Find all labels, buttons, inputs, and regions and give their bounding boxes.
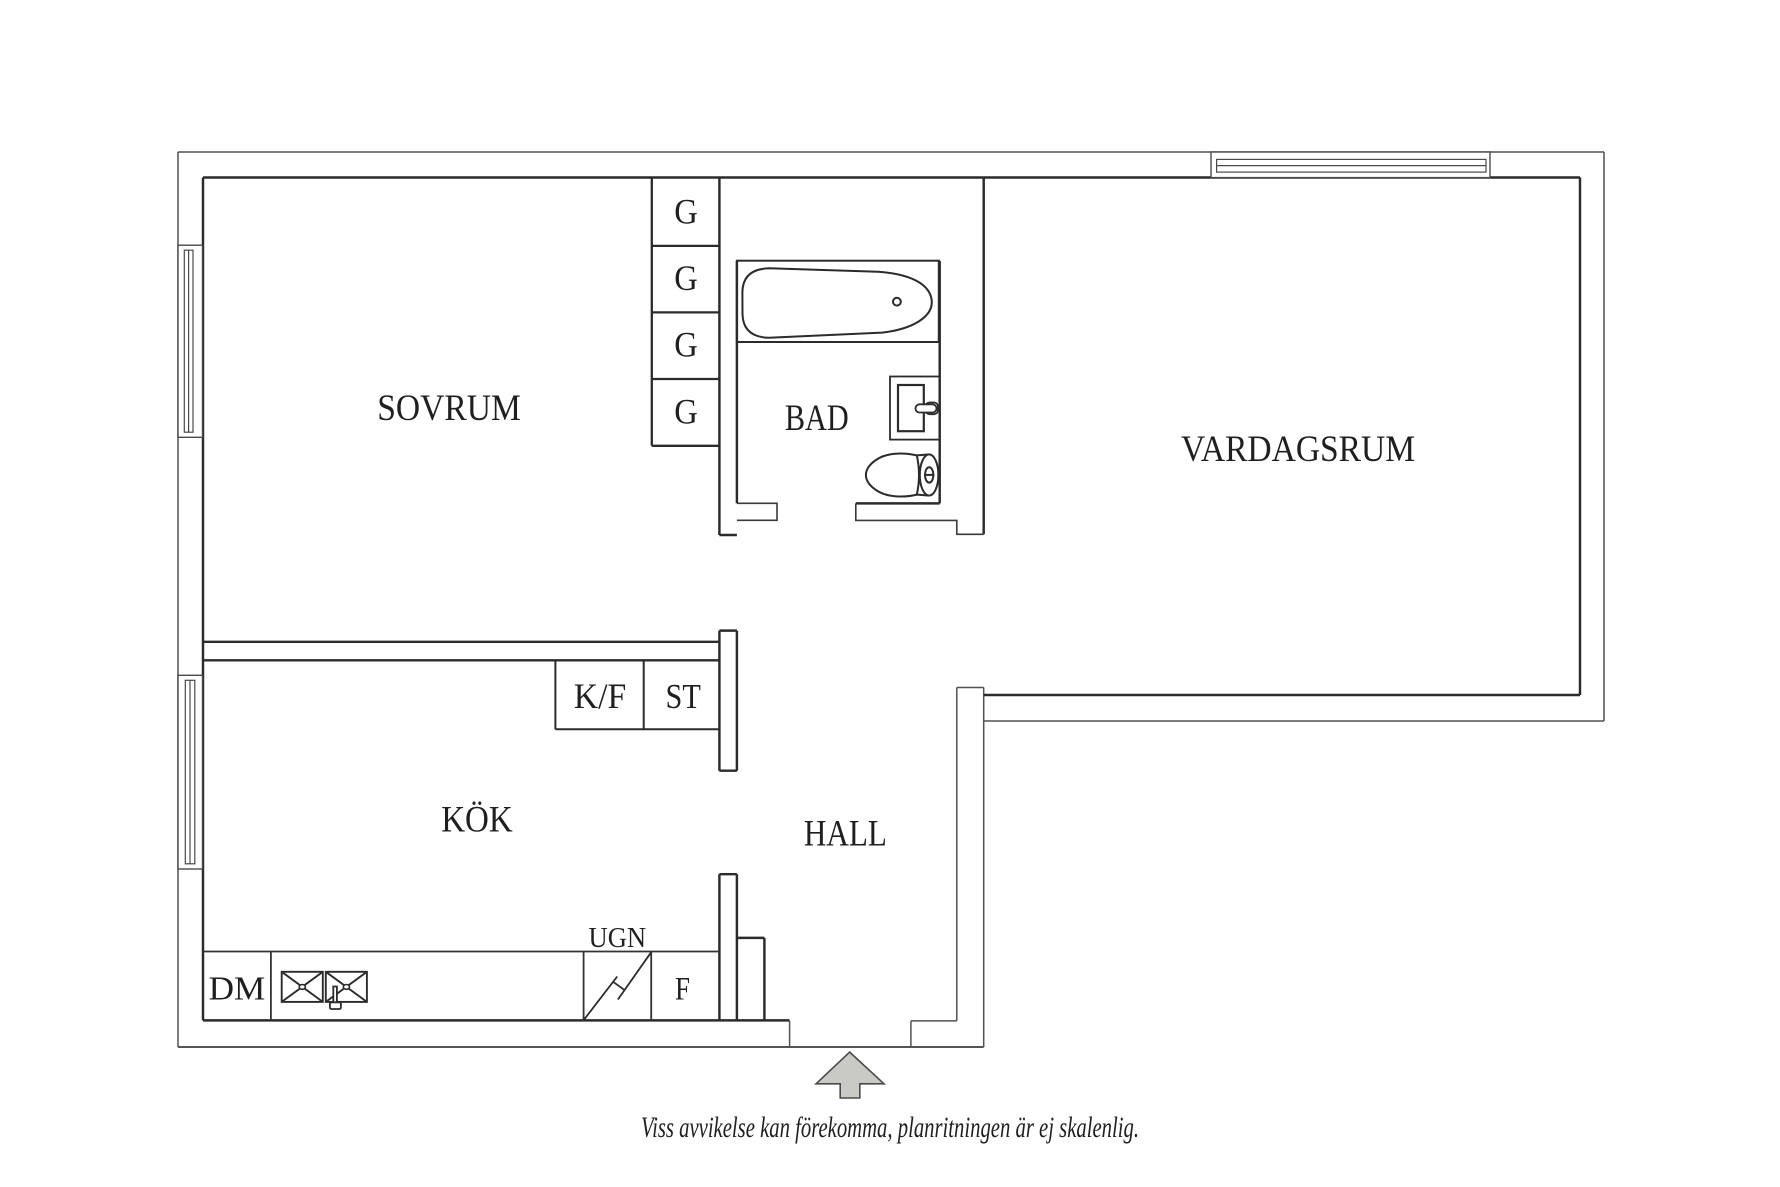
svg-text:ST: ST bbox=[666, 677, 701, 716]
svg-text:HALL: HALL bbox=[804, 813, 887, 854]
svg-text:F: F bbox=[675, 972, 690, 1008]
svg-text:BAD: BAD bbox=[785, 398, 849, 439]
svg-text:VARDAGSRUM: VARDAGSRUM bbox=[1181, 429, 1415, 470]
svg-text:DM: DM bbox=[209, 971, 266, 1008]
svg-text:UGN: UGN bbox=[589, 922, 647, 954]
svg-text:G: G bbox=[674, 391, 698, 431]
svg-text:Viss avvikelse kan förekomma,: Viss avvikelse kan förekomma, planritnin… bbox=[641, 1111, 1139, 1144]
svg-text:KÖK: KÖK bbox=[441, 800, 513, 841]
svg-text:K/F: K/F bbox=[574, 676, 627, 716]
svg-text:SOVRUM: SOVRUM bbox=[377, 388, 521, 429]
svg-text:G: G bbox=[674, 325, 698, 365]
svg-text:G: G bbox=[674, 258, 698, 298]
svg-text:G: G bbox=[674, 191, 698, 231]
